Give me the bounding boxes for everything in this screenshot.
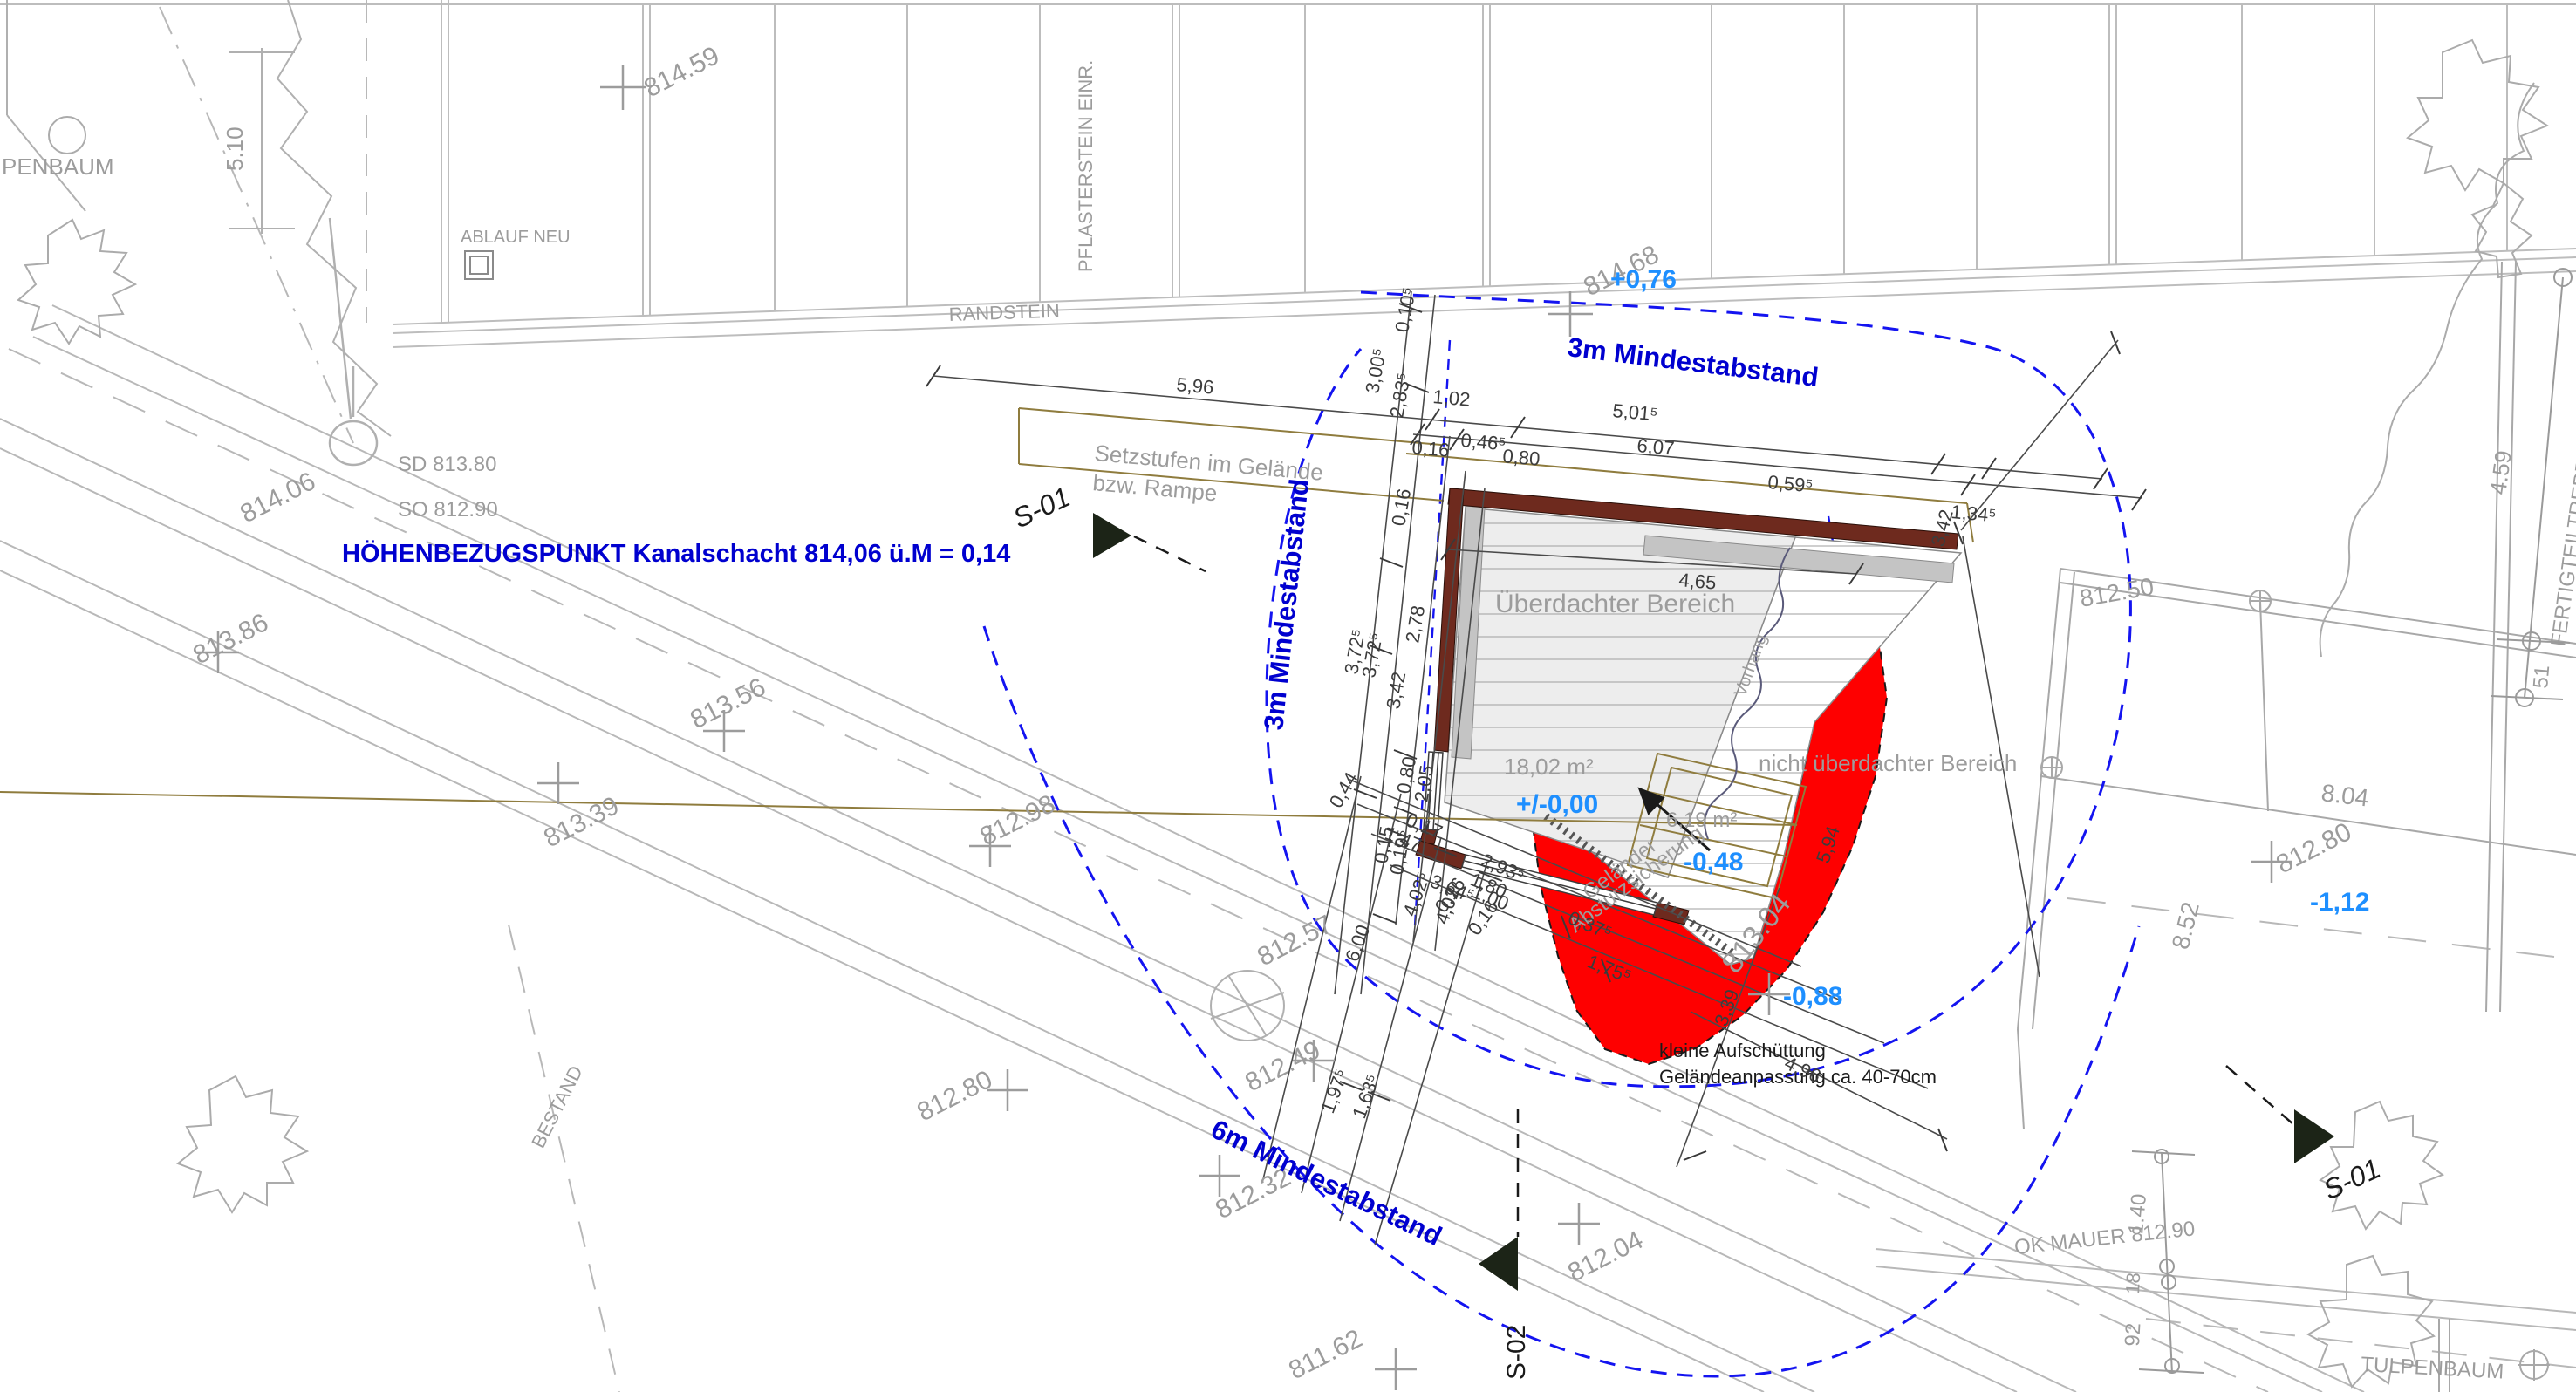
pavement-slab-band (0, 0, 2576, 347)
dim-1-40: 1.40 (2124, 1193, 2151, 1236)
label-3m-top: 3m Mindestabstand (1566, 331, 1820, 392)
label-ueberdachter-bereich: Überdachter Bereich (1495, 590, 1735, 618)
dim-4-65: 4,65 (1678, 569, 1718, 594)
text-labels: 814.59 814.68 814.06 813.86 813.56 813.3… (2, 41, 2576, 1385)
elev-812-49: 812.49 (1240, 1035, 1325, 1097)
dim-8-04: 8.04 (2320, 779, 2370, 811)
elev-812-80-right: 812.80 (2272, 817, 2356, 879)
tree-bottom-left (178, 1076, 307, 1212)
label-penbaum: PENBAUM (2, 154, 114, 180)
level-minus-112: -1,12 (2310, 888, 2369, 917)
dim-2-78: 2,78 (1401, 604, 1429, 645)
elev-813-56: 813.56 (686, 672, 770, 734)
section-marker-s01-left (1093, 513, 1206, 571)
label-area-6-19: 6,19 m² (1666, 809, 1737, 832)
section-s01-left-label: S-01 (1008, 481, 1075, 534)
tree-top-right (2408, 40, 2547, 190)
penbaum-trunk-circle (49, 117, 85, 154)
level-minus-088: -0,88 (1783, 982, 1842, 1011)
dim-18: 18 (2122, 1273, 2144, 1295)
dim-3-42-b: 3,42 (1382, 670, 1410, 711)
dim-8-52: 8.52 (2167, 899, 2204, 952)
elev-814-59: 814.59 (639, 41, 724, 103)
dim-0-80-a: 0,80 (1502, 445, 1541, 470)
section-marker-s01-right (2226, 1066, 2334, 1163)
label-sd: SD 813.80 (398, 453, 496, 476)
tree-top-left (18, 220, 135, 344)
dim-5-96: 5,96 (1176, 373, 1215, 399)
dim-1-02: 1,02 (1432, 386, 1472, 411)
label-nicht-ueberdacht: nicht überdachter Bereich (1759, 750, 2017, 776)
label-randstein: RANDSTEIN (948, 300, 1060, 325)
tree-bottom-right-1 (2320, 1102, 2443, 1229)
section-marker-s02 (1479, 1109, 1518, 1291)
label-ok-mauer: OK MAUER 812.90 (2013, 1217, 2197, 1259)
label-pflasterstein: PFLASTERSTEIN EINR. (1075, 60, 1097, 272)
level-plusminus-000: +/-0,00 (1516, 790, 1598, 819)
level-plus-076: +0,76 (1610, 265, 1677, 294)
shaft-symbol-2 (1211, 971, 1284, 1041)
dim-0-16-a: 0,16 (1411, 436, 1451, 461)
label-ablauf-neu: ABLAUF NEU (461, 228, 571, 247)
section-s01-right-label: S-01 (2319, 1152, 2385, 1205)
site-plan-page: 814.59 814.68 814.06 813.86 813.56 813.3… (0, 0, 2576, 1392)
dim-0-59-5: 0,59⁵ (1767, 471, 1814, 496)
label-fertigteiltreppe: FERTIGTEILTREPPE (2546, 444, 2576, 648)
label-3m-side: 3m Mindestabstand (1258, 477, 1315, 731)
elev-813-86: 813.86 (188, 608, 273, 670)
elev-812-80-left: 812.80 (912, 1065, 997, 1127)
label-area-18: 18,02 m² (1504, 754, 1594, 780)
elev-812-50: 812.50 (2078, 573, 2156, 612)
dim-51: 51 (2529, 665, 2554, 690)
kanalschacht-symbol (330, 218, 377, 465)
elev-811-62: 811.62 (1284, 1324, 1367, 1385)
label-bestand: BESTAND (527, 1062, 587, 1151)
section-s02-label: S-02 (1502, 1325, 1531, 1380)
level-minus-048: -0,48 (1684, 848, 1743, 877)
ablauf-drain (465, 251, 493, 279)
dim-1-97-5: 1,97⁵ (1316, 1066, 1352, 1116)
elev-812-98: 812.98 (975, 789, 1060, 851)
terrain-lines-topleft (7, 0, 391, 436)
dim-6-00: 6,00 (1341, 922, 1374, 965)
dim-6-07: 6,07 (1636, 434, 1676, 460)
hoehenbezugspunkt: HÖHENBEZUGSPUNKT Kanalschacht 814,06 ü.M… (342, 539, 1010, 568)
parcel-boundaries (2018, 262, 2576, 1392)
dim-0-46-5: 0,46⁵ (1460, 429, 1507, 454)
dim-5-10: 5.10 (222, 126, 248, 171)
stream-right (2320, 83, 2534, 657)
dim-2-83-5: 2,83⁵ (1385, 371, 1415, 420)
elev-812-04: 812.04 (1563, 1225, 1648, 1287)
dim-5-01-5: 5,01⁵ (1612, 399, 1659, 425)
dim-92: 92 (2121, 1322, 2145, 1347)
dim-3-00-5: 3,00⁵ (1361, 346, 1390, 395)
site-plan-drawing: 814.59 814.68 814.06 813.86 813.56 813.3… (0, 0, 2576, 1392)
label-so: SO 812.90 (398, 498, 498, 522)
elev-814-06: 814.06 (236, 467, 320, 529)
